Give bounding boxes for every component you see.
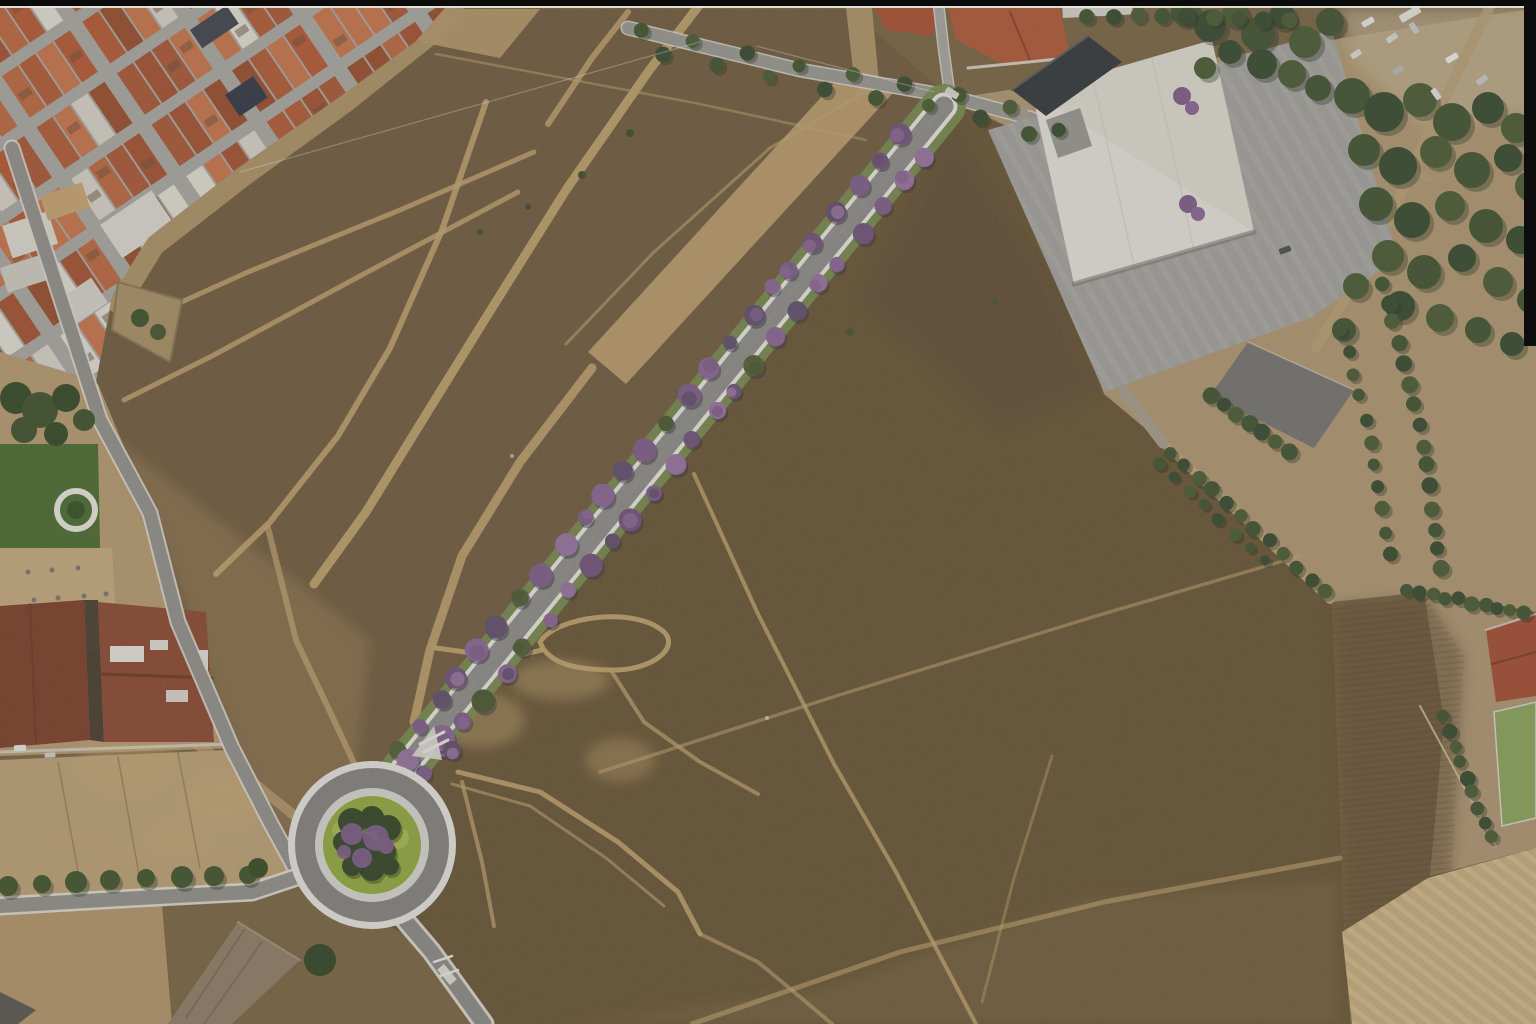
grain-light [0, 0, 1536, 1024]
right-black-bar [1524, 0, 1536, 346]
top-white-line [0, 6, 1536, 8]
aerial-orthophoto: Aerial orthophoto of a town edge: a new … [0, 0, 1536, 1024]
top-black-bar [0, 0, 1536, 6]
satellite-image [0, 0, 1536, 1024]
